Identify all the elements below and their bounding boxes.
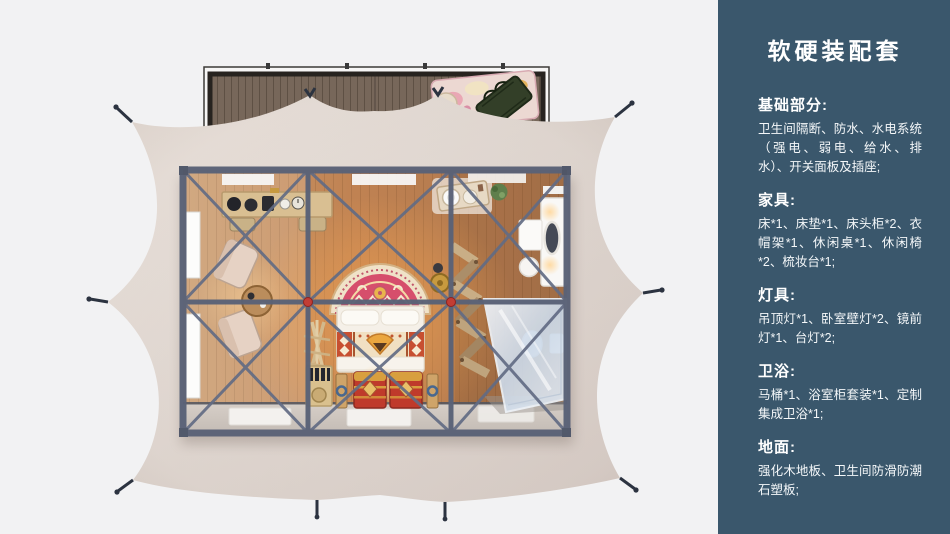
- section-body: 吊顶灯*1、卧室壁灯*2、镜前灯*1、台灯*2;: [758, 310, 922, 348]
- section-flooring: 地面: 强化木地板、卫生间防滑防潮石塑板;: [758, 438, 922, 500]
- section-bathroom: 卫浴: 马桶*1、浴室柜套装*1、定制集成卫浴*1;: [758, 362, 922, 424]
- section-heading: 基础部分:: [758, 96, 922, 115]
- section-basics: 基础部分: 卫生间隔断、防水、水电系统（强电、弱电、给水、排水）、开关面板及插座…: [758, 96, 922, 177]
- bathroom: [455, 299, 567, 414]
- kilim-blanket: [337, 332, 424, 357]
- mirror-lamp-glow: [540, 255, 560, 275]
- section-body: 床*1、床垫*1、床头柜*2、衣帽架*1、休闲桌*1、休闲椅*2、梳妆台*1;: [758, 215, 922, 272]
- section-body: 卫生间隔断、防水、水电系统（强电、弱电、给水、排水）、开关面板及插座;: [758, 120, 922, 177]
- pillow: [341, 310, 379, 325]
- section-heading: 灯具:: [758, 286, 922, 305]
- floor-mat: [229, 408, 291, 425]
- side-window: [186, 314, 200, 398]
- section-lighting: 灯具: 吊顶灯*1、卧室壁灯*2、镜前灯*1、台灯*2;: [758, 286, 922, 348]
- floorplan-render: [0, 0, 718, 534]
- red-joint-node: [304, 298, 313, 307]
- section-furniture: 家具: 床*1、床垫*1、床头柜*2、衣帽架*1、休闲桌*1、休闲椅*2、梳妆台…: [758, 191, 922, 272]
- floor-mat: [347, 409, 411, 426]
- page: 软硬装配套 基础部分: 卫生间隔断、防水、水电系统（强电、弱电、给水、排水）、开…: [0, 0, 950, 534]
- side-window: [186, 212, 200, 278]
- pillow: [381, 310, 419, 325]
- mirror-lamp-glow: [540, 202, 560, 222]
- mug: [280, 199, 290, 209]
- table-item: [248, 293, 255, 300]
- red-joint-node: [447, 298, 456, 307]
- floorplan-svg: [0, 0, 718, 534]
- desk-chair: [299, 217, 326, 231]
- ceiling-light-panel: [222, 174, 274, 185]
- potted-plant: [491, 184, 508, 201]
- info-panel: 软硬装配套 基础部分: 卫生间隔断、防水、水电系统（强电、弱电、给水、排水）、开…: [718, 0, 950, 534]
- hat: [227, 197, 241, 211]
- section-body: 马桶*1、浴室柜套装*1、定制集成卫浴*1;: [758, 386, 922, 424]
- panel-title: 软硬装配套: [748, 32, 922, 66]
- side-cabinet: [519, 220, 542, 250]
- ceiling-light-panel: [352, 174, 416, 185]
- section-body: 强化木地板、卫生间防滑防潮石塑板;: [758, 462, 922, 500]
- hat: [245, 199, 258, 212]
- section-heading: 卫浴:: [758, 362, 922, 381]
- section-heading: 家具:: [758, 191, 922, 210]
- section-heading: 地面:: [758, 438, 922, 457]
- oval-mirror: [545, 222, 560, 254]
- brass-item: [270, 188, 279, 193]
